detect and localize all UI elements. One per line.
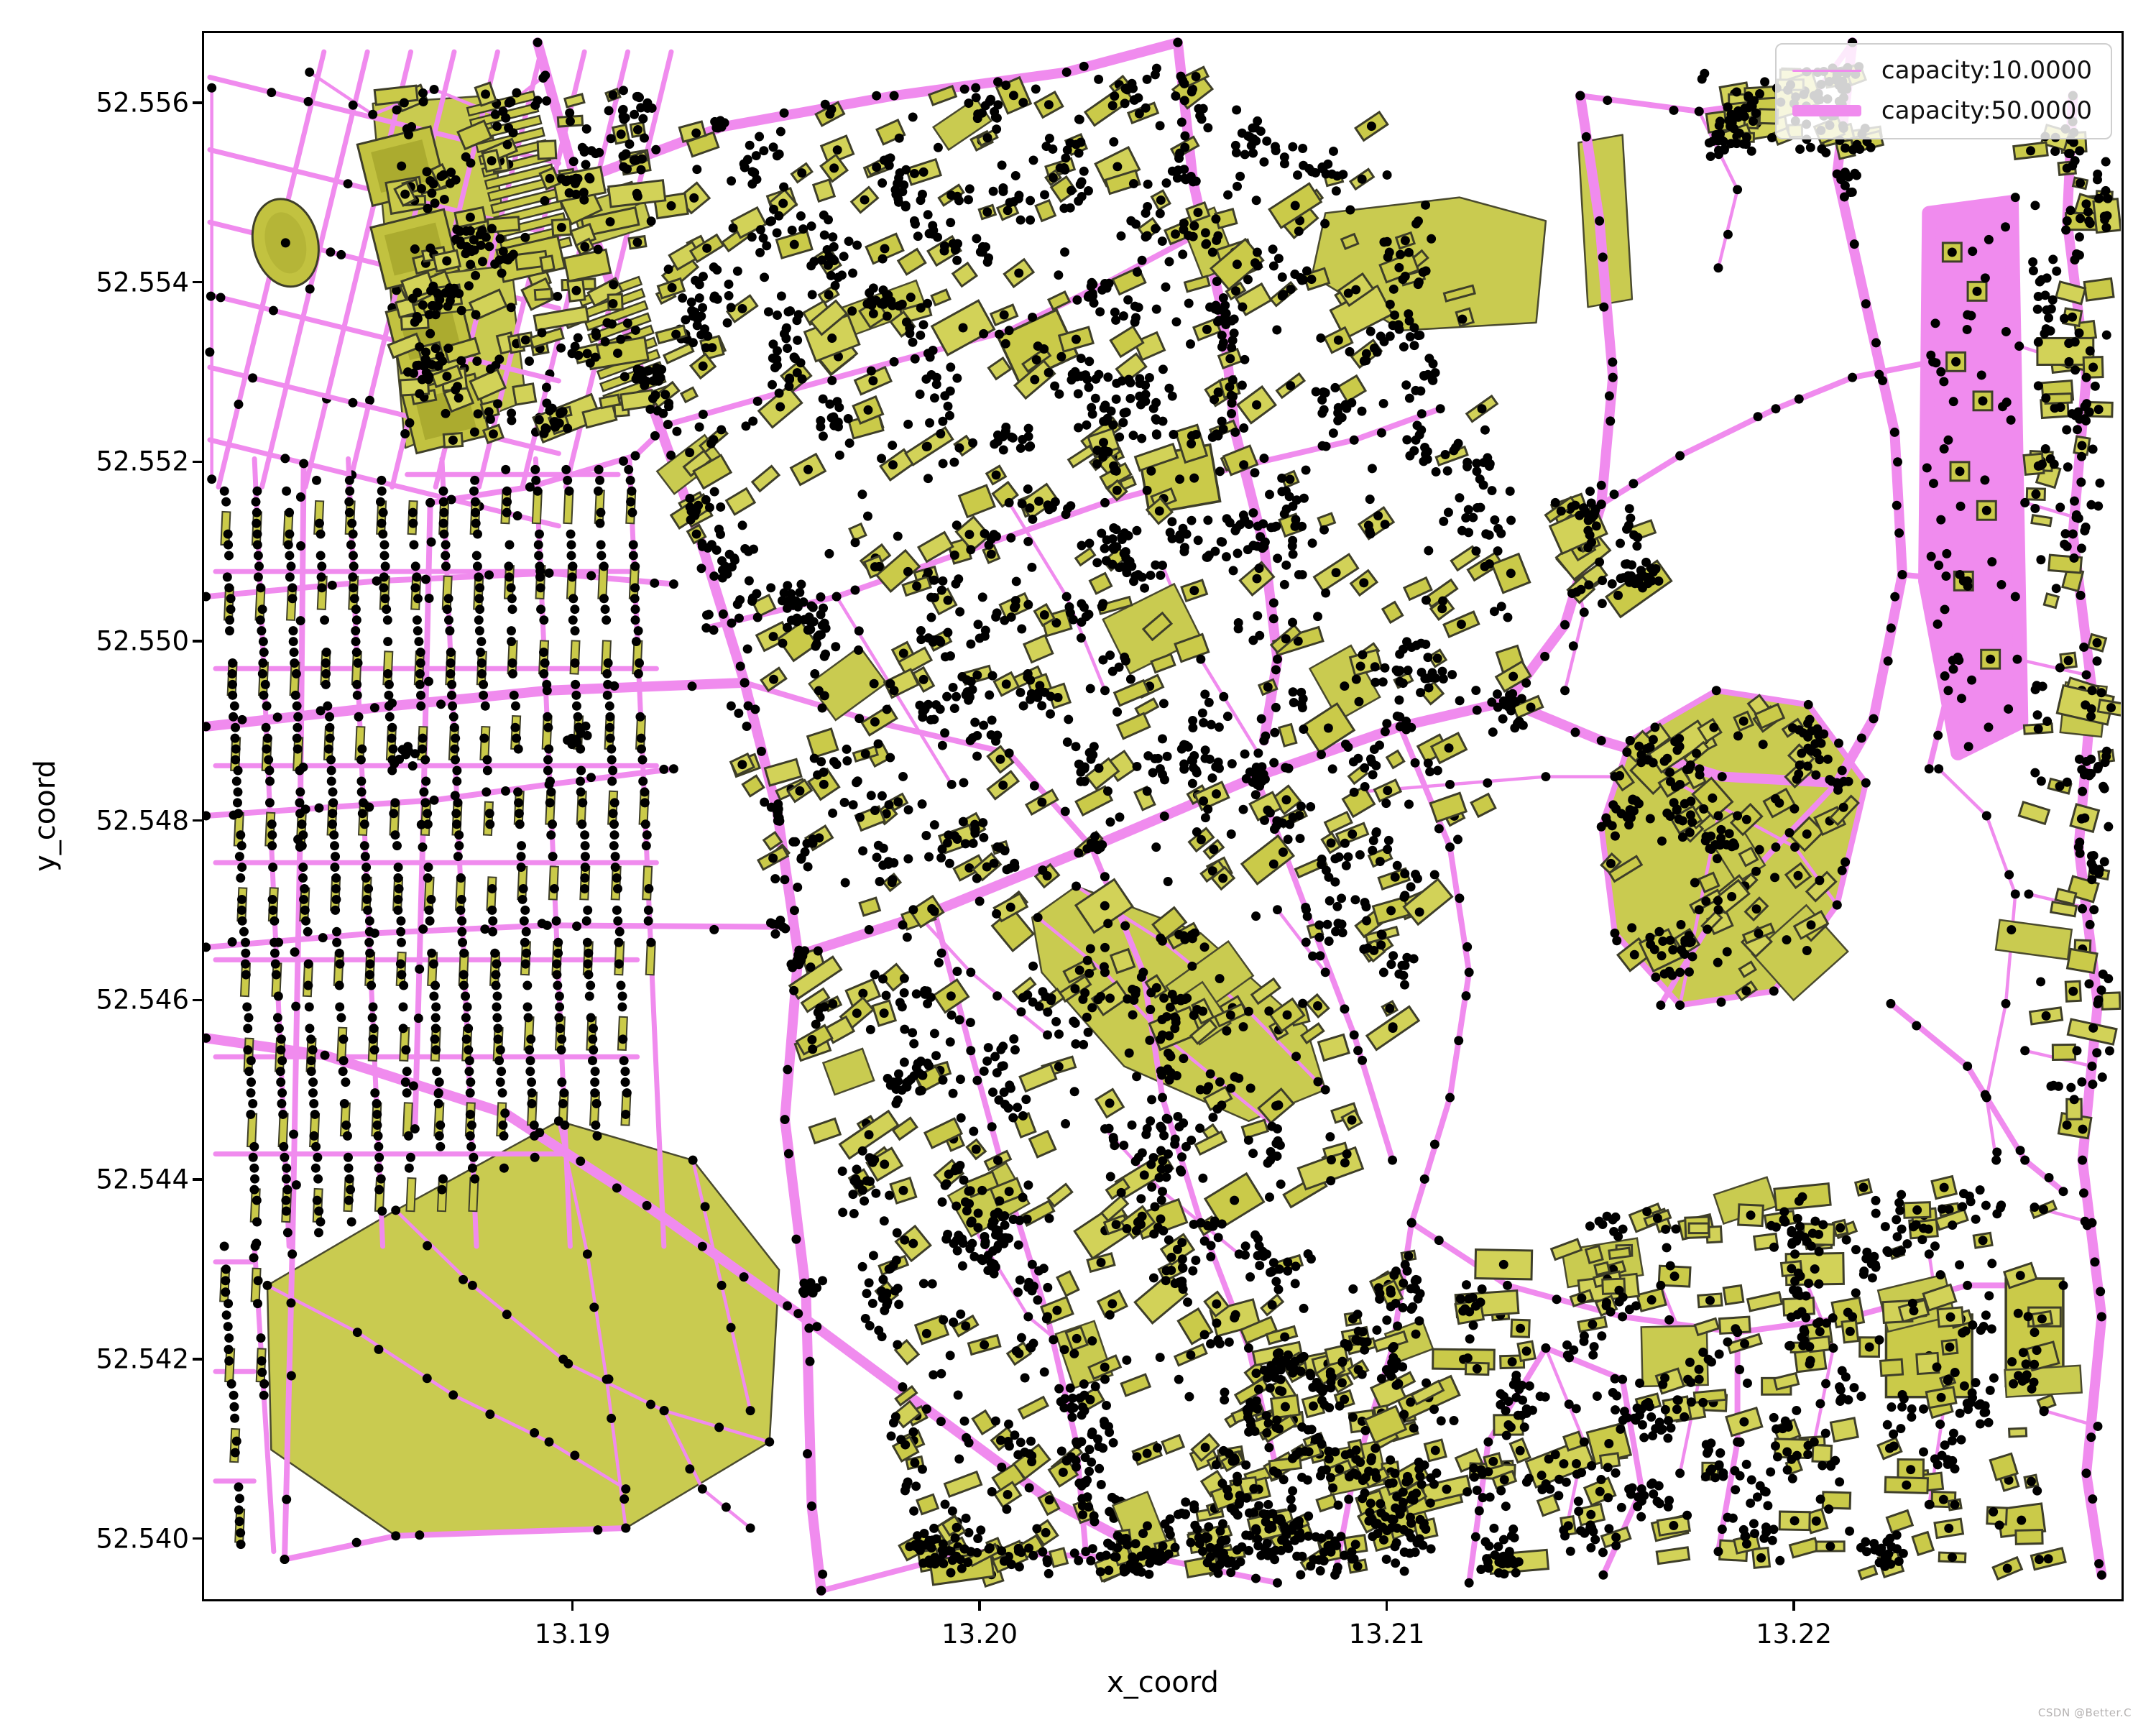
y-tick-label: 52.548: [24, 805, 189, 836]
legend: capacity:10.0000 capacity:50.0000: [1775, 43, 2112, 139]
y-tick-label: 52.556: [24, 87, 189, 118]
y-tick-mark: [193, 1358, 202, 1361]
y-tick-mark: [193, 640, 202, 643]
legend-line-thick-icon: [1792, 105, 1861, 116]
y-tick-label: 52.546: [24, 985, 189, 1016]
y-tick-label: 52.540: [24, 1523, 189, 1554]
watermark: CSDN @Better.C: [2038, 1706, 2132, 1719]
legend-entry-capacity-10: capacity:10.0000: [1792, 56, 2092, 85]
x-tick-mark: [1792, 1601, 1795, 1611]
x-axis-label: x_coord: [1107, 1666, 1219, 1699]
y-tick-label: 52.542: [24, 1343, 189, 1374]
x-tick-mark: [1386, 1601, 1388, 1611]
figure: y_coord x_coord 52.55652.55452.55252.550…: [0, 0, 2156, 1725]
y-tick-mark: [193, 1537, 202, 1540]
y-tick-mark: [193, 819, 202, 822]
y-tick-mark: [193, 101, 202, 104]
legend-label: capacity:10.0000: [1881, 56, 2092, 85]
legend-line-thin-icon: [1792, 70, 1861, 72]
legend-entry-capacity-50: capacity:50.0000: [1792, 96, 2092, 125]
legend-label: capacity:50.0000: [1881, 96, 2092, 125]
x-tick-mark: [571, 1601, 574, 1611]
y-tick-mark: [193, 461, 202, 464]
x-tick-mark: [978, 1601, 981, 1611]
x-tick-label: 13.19: [535, 1619, 611, 1650]
x-tick-label: 13.20: [941, 1619, 1018, 1650]
x-tick-label: 13.21: [1349, 1619, 1425, 1650]
plot-area: capacity:10.0000 capacity:50.0000: [202, 31, 2124, 1601]
y-tick-label: 52.552: [24, 446, 189, 477]
x-tick-label: 13.22: [1756, 1619, 1832, 1650]
map-canvas: [204, 33, 2121, 1598]
y-tick-mark: [193, 1178, 202, 1181]
y-tick-mark: [193, 281, 202, 284]
y-tick-label: 52.554: [24, 267, 189, 298]
y-tick-label: 52.544: [24, 1164, 189, 1195]
y-tick-label: 52.550: [24, 626, 189, 657]
y-tick-mark: [193, 999, 202, 1002]
